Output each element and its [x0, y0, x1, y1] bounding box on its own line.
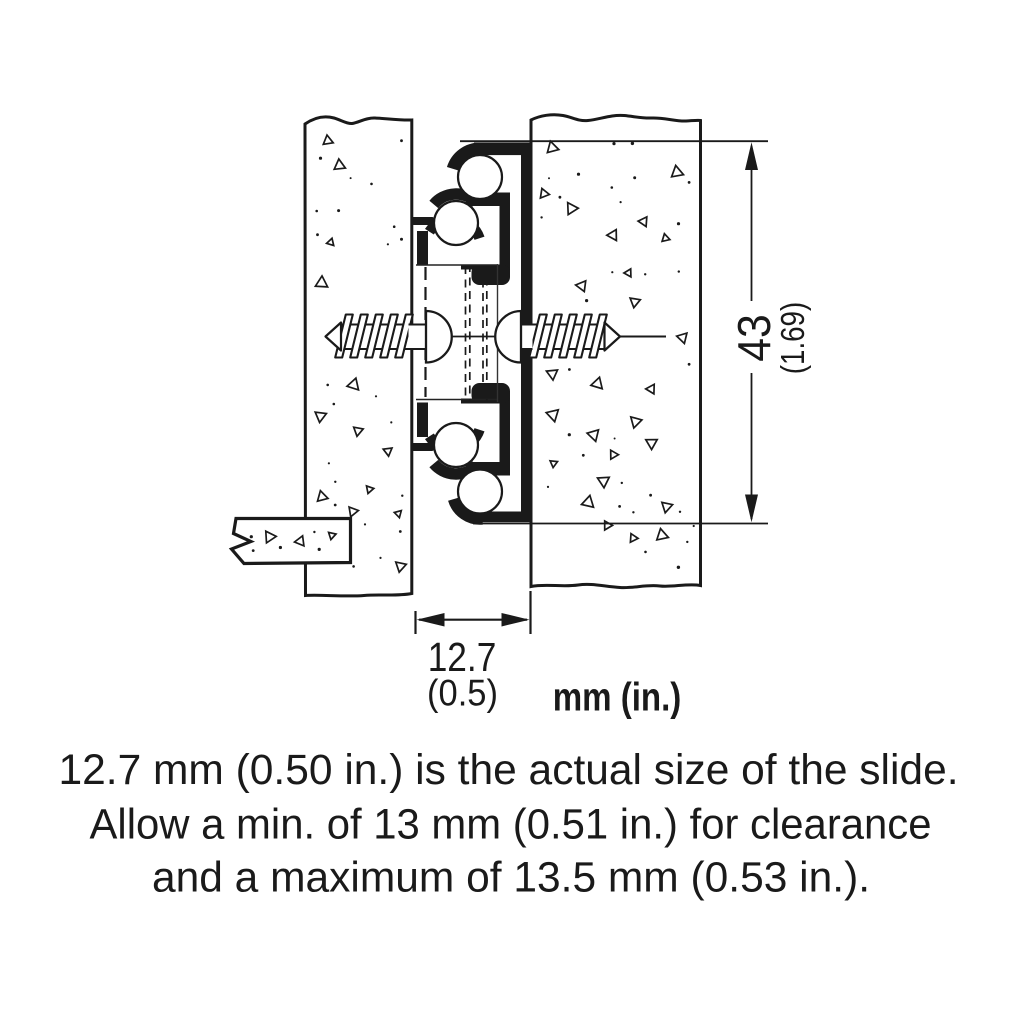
svg-text:43: 43	[730, 314, 781, 362]
svg-text:12.7 mm (0.50 in.) is the actu: 12.7 mm (0.50 in.) is the actual size of…	[58, 747, 958, 794]
svg-text:Allow a min. of 13 mm (0.51 in: Allow a min. of 13 mm (0.51 in.) for cle…	[89, 800, 931, 847]
svg-text:mm (in.): mm (in.)	[553, 675, 682, 720]
svg-text:and a maximum of 13.5 mm (0.53: and a maximum of 13.5 mm (0.53 in.).	[152, 855, 870, 902]
svg-text:(0.5): (0.5)	[427, 671, 498, 714]
svg-text:(1.69): (1.69)	[775, 302, 812, 374]
